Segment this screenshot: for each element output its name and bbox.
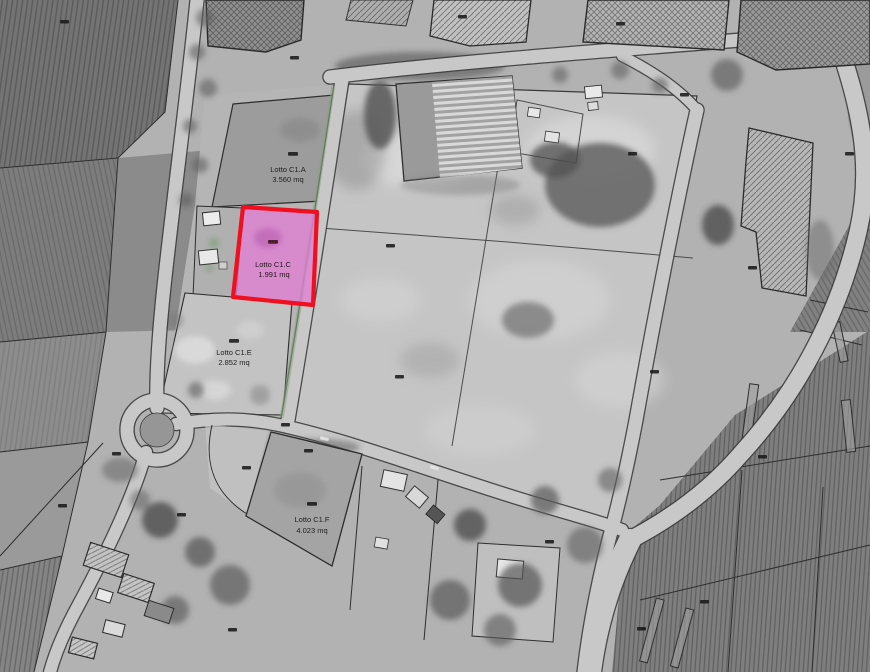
lot-name: Lotto C1.A: [270, 165, 305, 174]
building-hatched: [206, 0, 304, 52]
lot-area: 1.991 mq: [258, 270, 289, 279]
lot-label-c1a: Lotto C1.A 3.560 mq: [270, 165, 305, 184]
small-building: [584, 85, 602, 99]
lot-c1c-highlight[interactable]: [233, 207, 317, 305]
small-building: [544, 131, 559, 143]
building-hatched: [737, 0, 870, 70]
lot-name: Lotto C1.F: [294, 515, 329, 524]
lot-area: 4.023 mq: [296, 526, 327, 535]
small-building: [527, 107, 540, 118]
lot-name: Lotto C1.E: [216, 348, 251, 357]
lot-area: 2.852 mq: [218, 358, 249, 367]
lot-area: 3.560 mq: [272, 175, 303, 184]
cadastral-aerial-map: Lotto C1.A 3.560 mq Lotto C1.C 1.991 mq …: [0, 0, 870, 672]
roundabout-island: [140, 413, 174, 447]
building-hatched: [583, 0, 729, 50]
lot-name: Lotto C1.C: [255, 260, 291, 269]
lot-label-c1c: Lotto C1.C 1.991 mq: [255, 260, 291, 279]
map-viewport[interactable]: Lotto C1.A 3.560 mq Lotto C1.C 1.991 mq …: [0, 0, 870, 672]
small-building: [588, 101, 599, 110]
building-hatched: [430, 0, 531, 46]
lot-label-c1e: Lotto C1.E 2.852 mq: [216, 348, 251, 367]
